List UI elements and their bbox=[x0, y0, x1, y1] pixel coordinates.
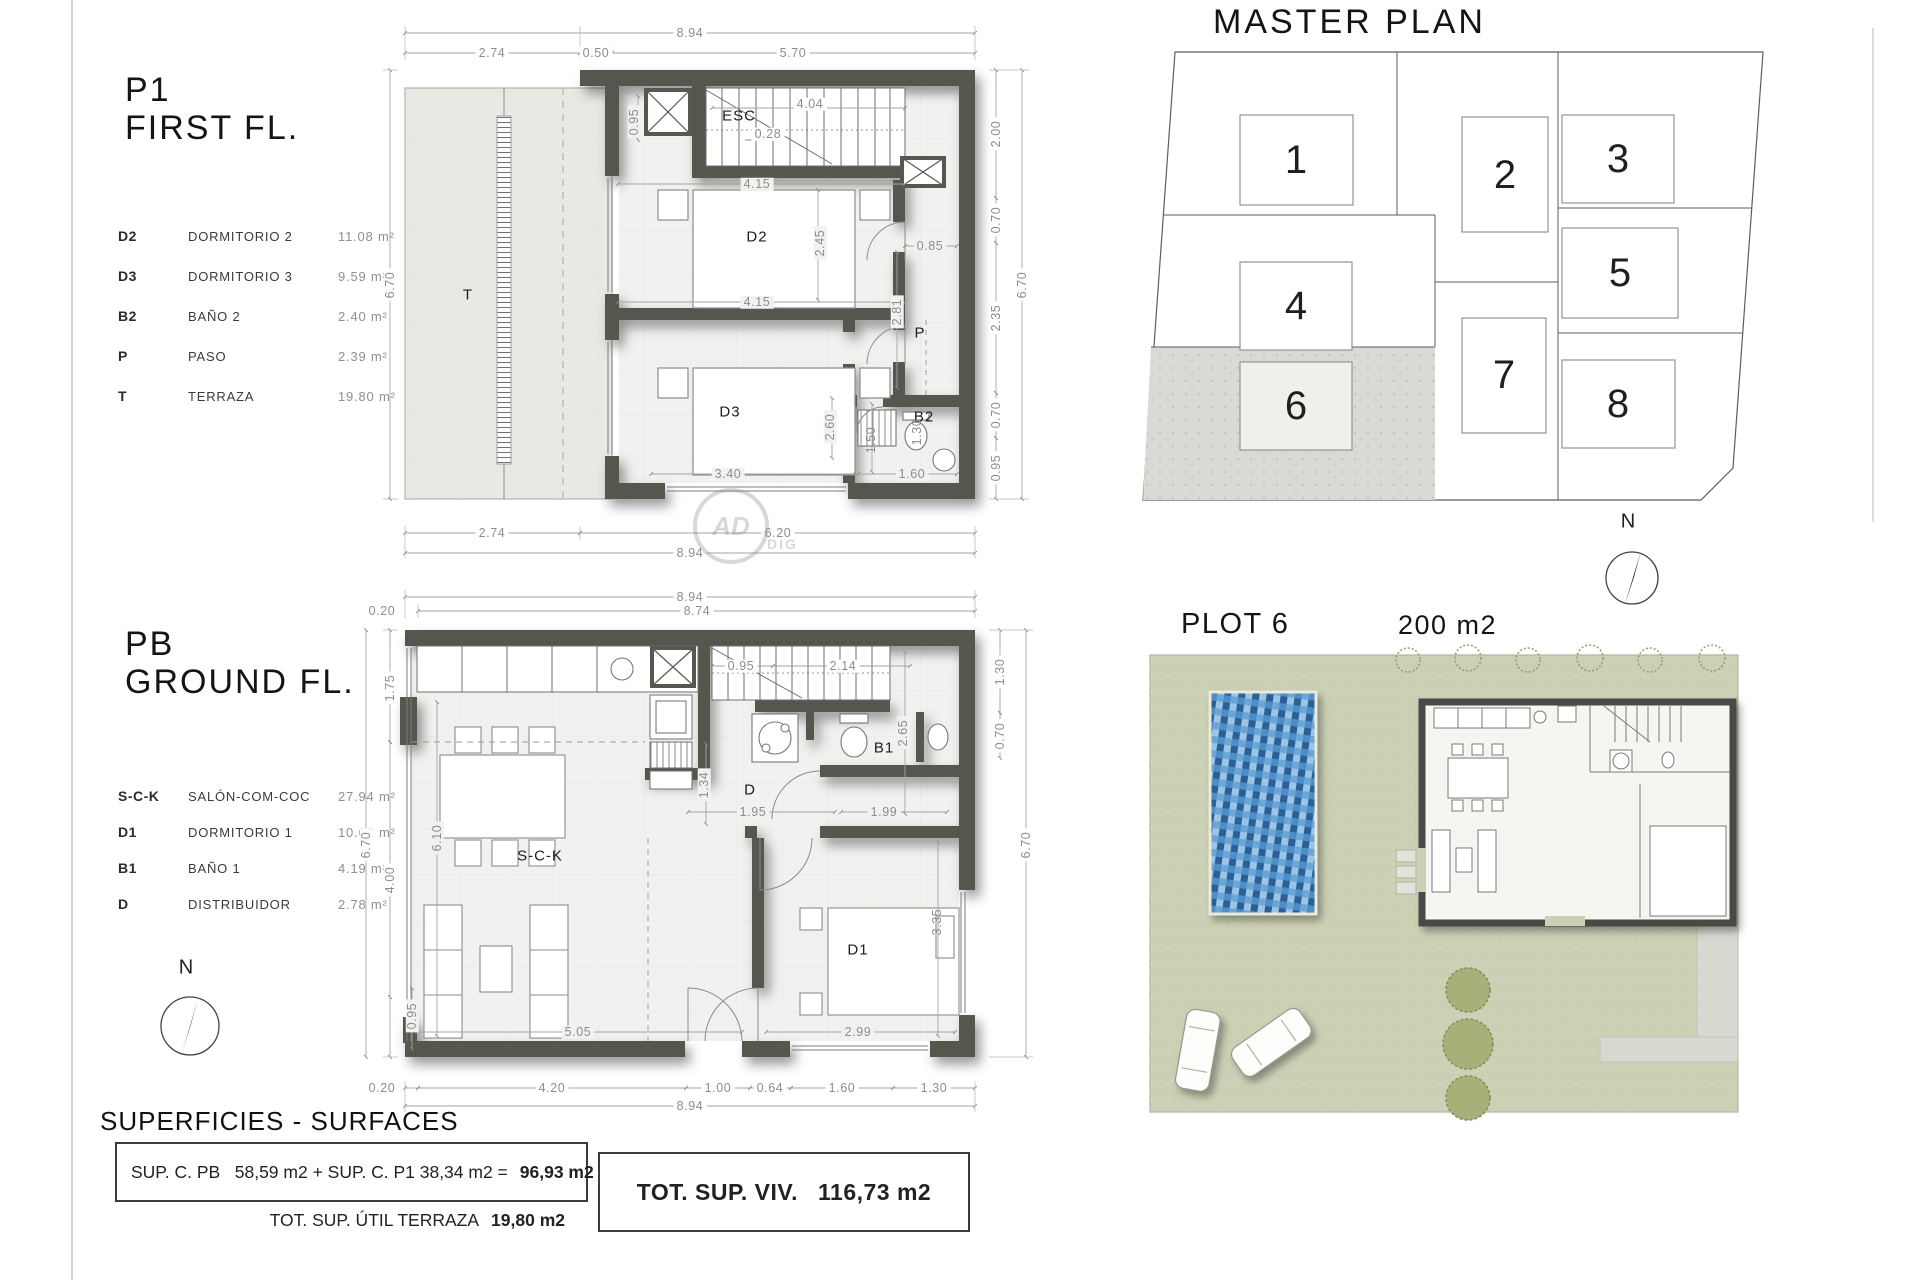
dim-label: 5.70 bbox=[777, 47, 810, 60]
terrace-area-label: TOT. SUP. ÚTIL TERRAZA bbox=[270, 1210, 479, 1231]
dim-label: 8.94 bbox=[674, 591, 707, 604]
dim-label: 8.94 bbox=[674, 27, 707, 40]
dim-label: 5.05 bbox=[562, 1026, 595, 1039]
legend-code: D bbox=[118, 896, 188, 912]
total-area-value: 116,73 m2 bbox=[818, 1179, 931, 1206]
dim-label: 2.45 bbox=[814, 227, 827, 260]
legend-code: P bbox=[118, 348, 188, 364]
legend-row: PPASO2.39 m² bbox=[118, 348, 396, 388]
dim-label: 1.30 bbox=[994, 656, 1007, 689]
dim-label: 0.64 bbox=[754, 1082, 787, 1095]
dim-label: 0.20 bbox=[366, 605, 399, 618]
floor1-legend: D2DORMITORIO 211.08 m² D3DORMITORIO 39.5… bbox=[118, 228, 396, 428]
dim-label: 2.35 bbox=[990, 302, 1003, 335]
floor1-code: P1 bbox=[125, 72, 171, 109]
dim-label: 6.70 bbox=[1016, 269, 1029, 302]
plot-number-1: 1 bbox=[1285, 140, 1307, 180]
dim-label: 2.74 bbox=[476, 527, 509, 540]
dim-label: 6.70 bbox=[1020, 829, 1033, 862]
dim-label: 8.94 bbox=[674, 1100, 707, 1113]
dim-label: 1.30 bbox=[918, 1082, 951, 1095]
legend-name: TERRAZA bbox=[188, 389, 338, 404]
legend-area: 27.94 m² bbox=[338, 789, 396, 804]
first-floor-plan bbox=[383, 26, 1029, 558]
total-area-label: TOT. SUP. VIV. bbox=[637, 1179, 798, 1206]
dim-label: 0.95 bbox=[990, 452, 1003, 485]
room-label-d1: D1 bbox=[847, 943, 868, 958]
total-area-box: TOT. SUP. VIV. 116,73 m2 bbox=[598, 1152, 970, 1232]
dim-label: 1.60 bbox=[826, 1082, 859, 1095]
plot6-site-plan bbox=[1150, 645, 1738, 1120]
dim-label: 2.99 bbox=[842, 1026, 875, 1039]
dim-label: 6.10 bbox=[431, 822, 444, 855]
legend-area: 2.78 m² bbox=[338, 897, 396, 912]
surfaces-heading: SUPERFICIES - SURFACES bbox=[100, 1106, 459, 1137]
dim-label: 3.35 bbox=[931, 906, 944, 939]
legend-code: B2 bbox=[118, 308, 188, 324]
dim-label: 2.81 bbox=[891, 296, 904, 329]
room-label-sck: S-C-K bbox=[517, 849, 563, 864]
dim-label: 1.50 bbox=[865, 424, 878, 457]
terrace-area-value: 19,80 m2 bbox=[491, 1210, 565, 1231]
dim-label: 1.60 bbox=[896, 468, 929, 481]
dim-label: 0.50 bbox=[580, 47, 613, 60]
legend-row: D1DORMITORIO 110.02 m² bbox=[118, 824, 396, 860]
dim-label: 0.95 bbox=[725, 660, 758, 673]
plot-number-2: 2 bbox=[1494, 155, 1516, 195]
dim-label: 0.70 bbox=[994, 720, 1007, 753]
legend-name: DORMITORIO 3 bbox=[188, 269, 338, 284]
dim-label: 1.34 bbox=[698, 769, 711, 802]
dim-label: 0.20 bbox=[366, 1082, 399, 1095]
plot-number-3: 3 bbox=[1607, 139, 1629, 179]
plot6-area: 200 m2 bbox=[1398, 610, 1497, 641]
legend-code: D2 bbox=[118, 228, 188, 244]
plot-number-4: 4 bbox=[1285, 286, 1307, 326]
room-label-b1: B1 bbox=[874, 741, 894, 756]
dim-label: 0.85 bbox=[914, 240, 947, 253]
legend-name: BAÑO 2 bbox=[188, 309, 338, 324]
ground-legend: S-C-KSALÓN-COM-COC27.94 m² D1DORMITORIO … bbox=[118, 788, 396, 932]
plot6-title: PLOT 6 bbox=[1181, 608, 1289, 641]
room-label-p: P bbox=[914, 326, 925, 341]
legend-code: T bbox=[118, 388, 188, 404]
dim-label: 2.14 bbox=[827, 660, 860, 673]
dim-label: 6.70 bbox=[360, 829, 373, 862]
dim-label: 1.95 bbox=[737, 806, 770, 819]
dim-label: 0.95 bbox=[406, 1000, 419, 1033]
legend-row: D2DORMITORIO 211.08 m² bbox=[118, 228, 396, 268]
legend-row: TTERRAZA19.80 m² bbox=[118, 388, 396, 428]
plot-number-6: 6 bbox=[1285, 386, 1307, 426]
dim-label: 1.00 bbox=[702, 1082, 735, 1095]
surfaces-formula: SUP. C. PB 58,59 m2 + SUP. C. P1 38,34 m… bbox=[131, 1162, 508, 1183]
terrace-area-line: TOT. SUP. ÚTIL TERRAZA 19,80 m2 bbox=[253, 1210, 565, 1231]
legend-name: DORMITORIO 2 bbox=[188, 229, 338, 244]
floor1-title: FIRST FL. bbox=[125, 110, 299, 147]
room-label-d3: D3 bbox=[719, 405, 740, 420]
surfaces-formula-box: SUP. C. PB 58,59 m2 + SUP. C. P1 38,34 m… bbox=[115, 1142, 588, 1202]
legend-code: S-C-K bbox=[118, 788, 188, 804]
dim-label: 2.60 bbox=[824, 411, 837, 444]
dim-label: 2.74 bbox=[476, 47, 509, 60]
dim-label: 6.20 bbox=[762, 527, 795, 540]
dim-label: 4.15 bbox=[741, 296, 774, 309]
ground-code: PB bbox=[125, 626, 174, 663]
dim-label: 4.00 bbox=[384, 864, 397, 897]
dim-label: 8.94 bbox=[674, 547, 707, 560]
plot-number-8: 8 bbox=[1607, 384, 1629, 424]
dim-label: 0.95 bbox=[628, 106, 641, 139]
plan-drawing bbox=[0, 0, 1920, 1280]
legend-name: BAÑO 1 bbox=[188, 861, 338, 876]
legend-code: D1 bbox=[118, 824, 188, 840]
legend-name: PASO bbox=[188, 349, 338, 364]
legend-name: DISTRIBUIDOR bbox=[188, 897, 338, 912]
dim-label: 0.28 bbox=[752, 128, 785, 141]
room-label-stairs: ESC bbox=[722, 109, 756, 124]
dim-label: 2.00 bbox=[990, 118, 1003, 151]
dim-label: 0.70 bbox=[990, 399, 1003, 432]
legend-area: 2.39 m² bbox=[338, 349, 396, 364]
architectural-sheet: { "sheet": { "north": "N", "watermark_ma… bbox=[0, 0, 1920, 1280]
north-label: N bbox=[179, 957, 193, 980]
dim-label: 1.30 bbox=[911, 416, 924, 449]
plot-number-7: 7 bbox=[1493, 355, 1515, 395]
dim-label: 6.70 bbox=[384, 269, 397, 302]
dim-label: 1.75 bbox=[384, 672, 397, 705]
legend-name: DORMITORIO 1 bbox=[188, 825, 338, 840]
dim-label: 4.15 bbox=[741, 178, 774, 191]
legend-row: S-C-KSALÓN-COM-COC27.94 m² bbox=[118, 788, 396, 824]
legend-row: B1BAÑO 14.19 m² bbox=[118, 860, 396, 896]
north-label: N bbox=[1621, 511, 1635, 534]
dim-label: 4.04 bbox=[794, 98, 827, 111]
master-plan-title: MASTER PLAN bbox=[1213, 4, 1486, 41]
legend-area: 2.40 m² bbox=[338, 309, 396, 324]
legend-row: DDISTRIBUIDOR2.78 m² bbox=[118, 896, 396, 932]
legend-area: 19.80 m² bbox=[338, 389, 396, 404]
legend-area: 11.08 m² bbox=[338, 229, 396, 244]
ground-floor-plan bbox=[366, 590, 1033, 1112]
dim-label: 2.65 bbox=[897, 717, 910, 750]
dim-label: 0.70 bbox=[990, 204, 1003, 237]
legend-row: B2BAÑO 22.40 m² bbox=[118, 308, 396, 348]
room-label-d2: D2 bbox=[746, 230, 767, 245]
plot-number-5: 5 bbox=[1609, 253, 1631, 293]
legend-code: B1 bbox=[118, 860, 188, 876]
dim-label: 4.20 bbox=[536, 1082, 569, 1095]
dim-label: 3.40 bbox=[712, 468, 745, 481]
dim-label: 8.74 bbox=[681, 605, 714, 618]
legend-name: SALÓN-COM-COC bbox=[188, 789, 338, 804]
surfaces-formula-result: 96,93 m2 bbox=[520, 1162, 594, 1183]
north-arrow bbox=[161, 997, 219, 1055]
legend-code: D3 bbox=[118, 268, 188, 284]
ground-title: GROUND FL. bbox=[125, 664, 355, 701]
room-label-d: D bbox=[744, 783, 756, 798]
dim-label: 1.99 bbox=[868, 806, 901, 819]
legend-row: D3DORMITORIO 39.59 m² bbox=[118, 268, 396, 308]
room-label-terrace: T bbox=[463, 288, 473, 303]
master-plan bbox=[1143, 52, 1763, 604]
